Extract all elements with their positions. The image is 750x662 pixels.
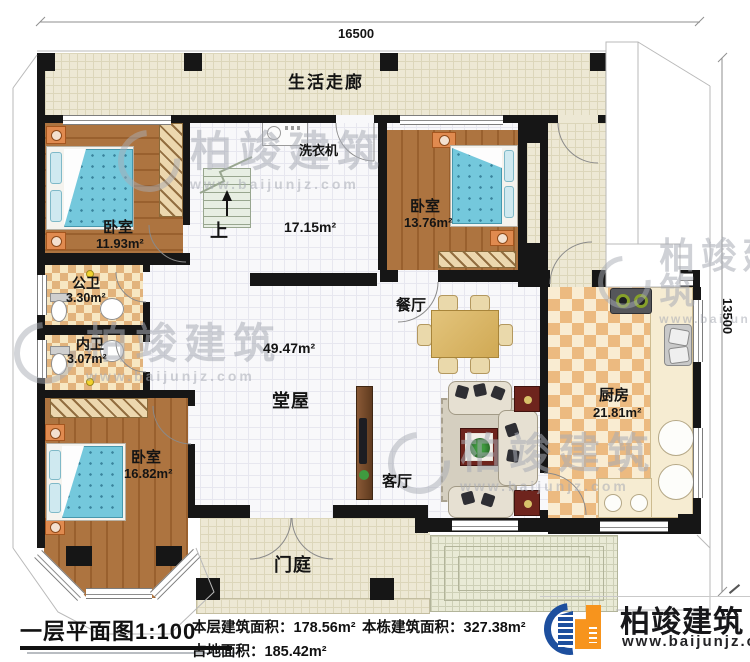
side-table — [514, 386, 540, 412]
door-opening — [336, 115, 374, 123]
wardrobe — [159, 123, 183, 217]
round-basin — [658, 420, 694, 456]
window — [37, 275, 47, 315]
column — [184, 53, 202, 71]
label-stairs-up: 上 — [210, 222, 228, 242]
sofa-cushion — [506, 449, 520, 463]
wall-segment — [188, 505, 250, 518]
wall-segment — [37, 253, 190, 265]
step-outline — [458, 556, 590, 591]
room-label-porch: 门庭 — [274, 556, 312, 576]
column — [380, 53, 398, 71]
stove-icon — [610, 288, 652, 314]
room-area-inner-bath: 3.07m² — [67, 353, 107, 367]
dining-table — [431, 310, 499, 358]
room-label-kitchen: 厨房 — [599, 388, 629, 405]
bay-corner — [66, 546, 92, 566]
dimension-top: 16500 — [338, 27, 374, 41]
wall-segment — [378, 123, 387, 270]
room-label-hall: 堂屋 — [272, 392, 310, 412]
dining-chair — [498, 324, 513, 346]
burner — [634, 294, 648, 308]
window — [645, 273, 693, 286]
table-lamp-icon — [524, 500, 532, 508]
column — [518, 115, 548, 143]
nightstand — [46, 232, 66, 250]
toilet-icon — [51, 300, 67, 322]
room-area-kitchen: 21.81m² — [593, 406, 641, 420]
burner — [616, 294, 630, 308]
plant-icon — [470, 438, 490, 458]
stairs — [203, 168, 251, 228]
nightstand — [490, 230, 514, 246]
room-area-bedroom2: 13.76m² — [404, 216, 452, 230]
dining-chair — [470, 357, 490, 374]
wardrobe — [50, 398, 148, 418]
round-stool — [630, 494, 648, 512]
wall-segment — [518, 143, 527, 243]
room-label-public-bath: 公卫 — [72, 276, 100, 291]
stat-building-area: 本栋建筑面积：327.38m² — [362, 616, 526, 637]
window — [63, 115, 171, 125]
wall-segment — [143, 265, 150, 272]
floor-plan-page: 柏竣建筑 www.baijunjz.com 柏竣建筑 www.baijunjz.… — [0, 0, 750, 662]
tv-icon — [359, 418, 367, 464]
sink-basin — [668, 346, 690, 365]
room-area-bedroom1: 11.93m² — [96, 237, 144, 251]
nightstand — [45, 424, 65, 441]
sofa-cushion — [473, 383, 487, 397]
plan-title: 一层平面图1:100 — [20, 614, 196, 646]
pillow — [49, 483, 61, 513]
dining-chair — [438, 357, 458, 374]
area-stair-hall: 17.15m² — [284, 220, 336, 235]
ceiling-light-icon — [86, 378, 94, 386]
porch-step-strip — [196, 598, 430, 614]
window — [693, 300, 703, 362]
label-washer: 洗衣机 — [299, 144, 338, 158]
nightstand — [46, 126, 66, 144]
pillow — [49, 450, 61, 480]
room-label-bedroom3: 卧室 — [131, 450, 161, 467]
room-label-bedroom2: 卧室 — [410, 199, 440, 216]
dimension-right: 13500 — [720, 298, 734, 334]
room-label-living: 客厅 — [382, 474, 412, 491]
sink-basin — [668, 327, 690, 346]
pillow — [504, 150, 514, 182]
stat-floor-area: 本层建筑面积：178.56m² — [192, 616, 356, 637]
wall-segment — [380, 270, 398, 282]
logo-building-blue — [558, 611, 573, 647]
wall-segment — [143, 302, 150, 342]
stat-value: 327.38m² — [464, 620, 526, 636]
door-opening — [558, 115, 598, 123]
sofa — [498, 410, 538, 486]
room-label-inner-bath: 内卫 — [76, 337, 104, 352]
logo-windows — [589, 627, 597, 643]
round-basin — [658, 464, 694, 500]
room-area-public-bath: 3.30m² — [66, 292, 106, 306]
room-label-dining: 餐厅 — [396, 298, 426, 315]
wall-segment — [37, 325, 150, 335]
wall-segment — [333, 505, 428, 518]
window — [400, 115, 503, 125]
wall-segment — [183, 123, 190, 225]
stat-value: 178.56m² — [294, 620, 356, 636]
stat-land-area: 占地面积：185.42m² — [192, 640, 327, 661]
dining-chair — [417, 324, 432, 346]
column — [415, 505, 428, 533]
room-label-bedroom1: 卧室 — [103, 220, 133, 237]
wall-segment — [143, 372, 150, 390]
washer-drum — [267, 126, 281, 140]
wall-segment — [188, 444, 195, 508]
wall-segment — [37, 390, 195, 398]
wall-segment — [540, 143, 548, 473]
pillow — [50, 190, 62, 222]
window — [693, 428, 703, 498]
room-label-corridor: 生活走廊 — [288, 74, 364, 93]
room-area-hall: 49.47m² — [263, 341, 315, 356]
toilet-icon — [51, 353, 67, 375]
pillow — [504, 186, 514, 218]
stat-label: 本层建筑面积： — [192, 620, 294, 636]
column — [196, 578, 220, 600]
room-area-bedroom3: 16.82m² — [124, 467, 172, 481]
stat-label: 占地面积： — [192, 644, 265, 660]
wall-segment — [540, 510, 548, 518]
side-table — [514, 490, 540, 516]
wall-segment — [250, 273, 377, 286]
window — [600, 521, 668, 532]
brand-tick — [729, 584, 740, 594]
brand-logo-icon — [542, 599, 618, 659]
stat-label: 本栋建筑面积： — [362, 620, 464, 636]
window — [37, 340, 47, 378]
window — [452, 520, 518, 531]
column — [37, 53, 55, 71]
wall-segment — [188, 398, 195, 406]
column — [590, 53, 608, 71]
porch-floor — [200, 518, 430, 598]
wall-segment — [438, 270, 520, 282]
table-lamp-icon — [524, 396, 532, 404]
kitchen-sink-icon — [664, 324, 692, 366]
coffee-table — [460, 428, 498, 466]
pillow — [50, 152, 62, 184]
brand-url: www.baijunjz.com — [622, 633, 750, 650]
bay-window — [86, 588, 152, 599]
round-stool — [604, 494, 622, 512]
column — [518, 243, 548, 287]
wardrobe — [438, 251, 516, 268]
column — [678, 514, 700, 534]
washer-controls — [285, 126, 303, 130]
plant-icon — [359, 470, 369, 480]
column — [370, 578, 394, 600]
stat-value: 185.42m² — [265, 644, 327, 660]
